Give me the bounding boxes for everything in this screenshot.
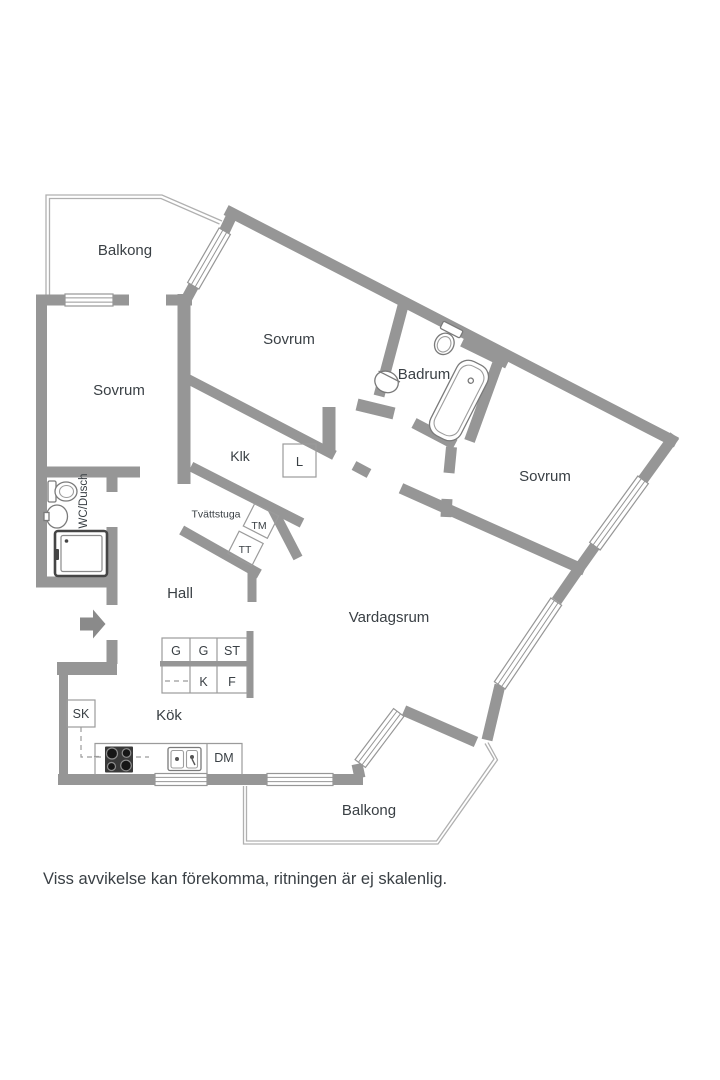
window-kitchen bbox=[155, 774, 207, 786]
cabinet-label-k: K bbox=[199, 675, 208, 689]
cabinet-label-st: ST bbox=[224, 644, 240, 658]
window-bedroom-right bbox=[590, 476, 649, 550]
room-label-balcony-bottom: Balkong bbox=[342, 802, 396, 819]
room-label-closet: Klk bbox=[230, 448, 250, 464]
interior-walls bbox=[41, 294, 580, 698]
room-label-balcony-top: Balkong bbox=[98, 242, 152, 259]
window-living-room-south bbox=[267, 774, 333, 786]
entrance-arrow-icon bbox=[80, 610, 106, 639]
appliance-label-dishwasher: DM bbox=[214, 751, 233, 765]
kitchen-sink-icon bbox=[168, 748, 201, 771]
room-label-linen: L bbox=[296, 454, 303, 469]
cabinet-label-g2: G bbox=[199, 644, 209, 658]
disclaimer-text: Viss avvikelse kan förekomma, ritningen … bbox=[43, 870, 447, 889]
room-label-bedroom-right: Sovrum bbox=[519, 468, 571, 485]
cabinet-label-g1: G bbox=[171, 644, 181, 658]
room-label-bedroom-left: Sovrum bbox=[93, 382, 145, 399]
room-label-bedroom-mid: Sovrum bbox=[263, 331, 315, 348]
room-label-bathroom: Badrum bbox=[398, 366, 451, 383]
floorplan-page: Balkong Sovrum Sovrum Badrum Sovrum Klk … bbox=[0, 0, 720, 1080]
window-balcony-top bbox=[188, 228, 231, 289]
shower-icon bbox=[54, 531, 107, 576]
appliance-label-dryer: TT bbox=[239, 544, 252, 556]
room-label-laundry: Tvättstuga bbox=[191, 509, 240, 521]
room-label-hall: Hall bbox=[167, 585, 193, 602]
stove-icon bbox=[105, 747, 133, 773]
exterior-walls-rotated bbox=[187, 213, 672, 743]
room-label-kitchen: Kök bbox=[156, 707, 182, 724]
cabinet-label-f: F bbox=[228, 675, 236, 689]
room-label-living-room: Vardagsrum bbox=[349, 609, 430, 626]
floorplan-drawing: Balkong Sovrum Sovrum Badrum Sovrum Klk … bbox=[0, 0, 720, 1080]
window-bedroom-left bbox=[65, 294, 113, 306]
cabinet-label-sk: SK bbox=[73, 707, 90, 721]
window-living-room-bay bbox=[355, 709, 404, 768]
window-living-room-east bbox=[494, 598, 561, 689]
room-label-wc-shower: WC/Dusch bbox=[78, 474, 90, 529]
toilet-icon bbox=[48, 481, 77, 502]
appliance-label-washer: TM bbox=[251, 520, 266, 532]
sink-icon bbox=[44, 505, 68, 528]
